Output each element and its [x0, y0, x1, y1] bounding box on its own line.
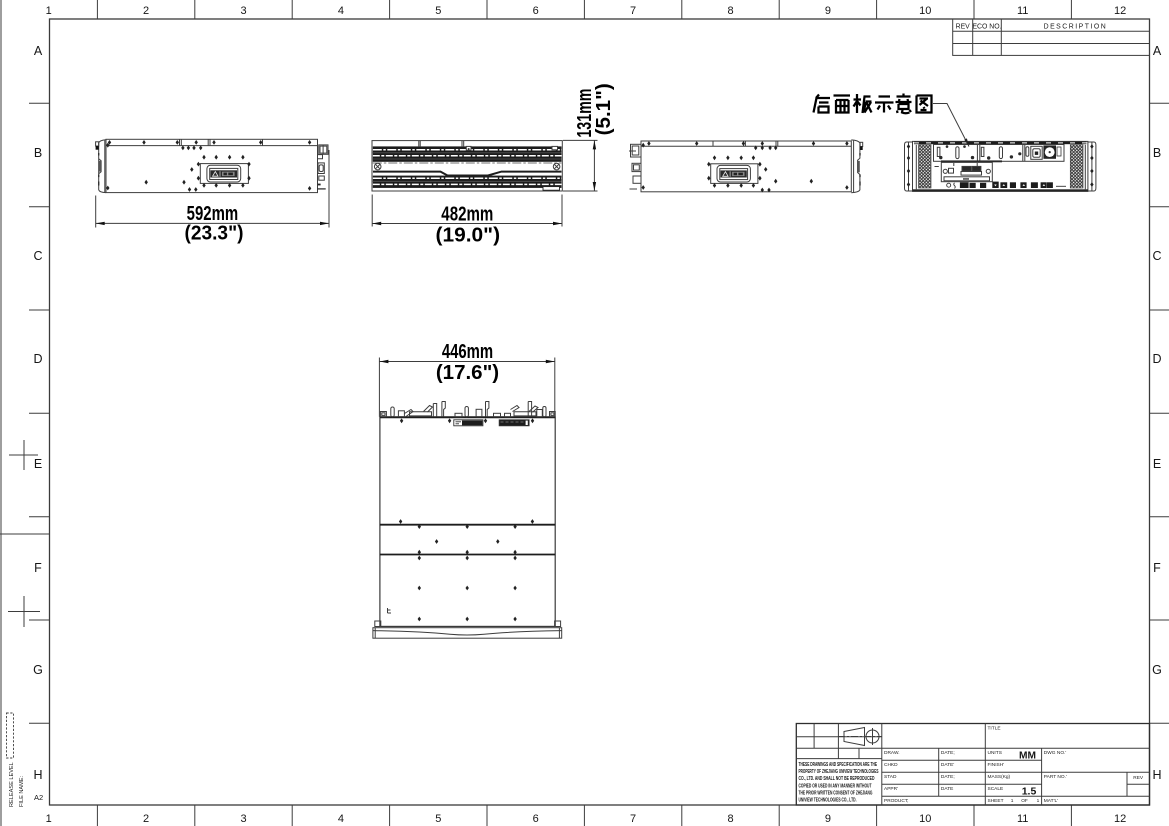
svg-text:CO., LTD. AND SHALL NOT BE REP: CO., LTD. AND SHALL NOT BE REPRODUCED: [799, 776, 875, 782]
svg-text:DWG NO.': DWG NO.': [1044, 750, 1067, 756]
svg-text:5: 5: [435, 5, 441, 17]
svg-text:446mm: 446mm: [442, 341, 493, 363]
svg-text:REV: REV: [1133, 775, 1144, 781]
svg-text:10: 10: [919, 5, 931, 17]
svg-text:D: D: [33, 352, 42, 366]
svg-text:1: 1: [1011, 798, 1014, 804]
svg-text:1: 1: [46, 813, 52, 825]
svg-text:B: B: [1153, 146, 1161, 160]
svg-text:DATE: DATE: [941, 786, 953, 792]
svg-text:10: 10: [919, 813, 931, 825]
svg-text:MAT'L': MAT'L': [1044, 798, 1058, 804]
svg-text:11: 11: [1017, 813, 1028, 825]
svg-text:5: 5: [435, 813, 441, 825]
svg-text:2: 2: [143, 813, 149, 825]
svg-text:3: 3: [240, 813, 246, 825]
svg-text:DATE;: DATE;: [941, 750, 955, 756]
svg-text:(19.0"): (19.0"): [436, 224, 501, 246]
svg-text:C: C: [1152, 249, 1161, 263]
svg-text:D: D: [1152, 352, 1161, 366]
svg-text:F: F: [34, 561, 42, 575]
svg-text:4: 4: [338, 5, 344, 17]
svg-text:MM: MM: [1019, 750, 1036, 762]
svg-text:PRODUCT;: PRODUCT;: [884, 798, 909, 804]
svg-text:PART NO.': PART NO.': [1044, 774, 1067, 780]
svg-text:4: 4: [338, 813, 344, 825]
svg-text:MASS(Kg): MASS(Kg): [988, 774, 1011, 780]
svg-text:A2: A2: [34, 793, 43, 802]
svg-text:G: G: [1152, 663, 1162, 677]
svg-text:11: 11: [1017, 5, 1028, 17]
svg-text:7: 7: [630, 5, 636, 17]
svg-text:STAD: STAD: [884, 774, 897, 780]
svg-text:SCALE: SCALE: [988, 786, 1004, 792]
svg-text:THESE DRAWINGS AND SPECIFICATI: THESE DRAWINGS AND SPECIFICATION ARE THE: [799, 762, 878, 768]
svg-text:C: C: [33, 249, 42, 263]
svg-text:12: 12: [1114, 813, 1126, 825]
svg-text:12: 12: [1114, 5, 1126, 17]
svg-text:UNITS: UNITS: [988, 750, 1002, 756]
svg-text:UNIVIEW TECHNOLOGIES CO., LTD.: UNIVIEW TECHNOLOGIES CO., LTD.: [799, 798, 857, 804]
svg-text:8: 8: [727, 813, 733, 825]
svg-text:(23.3"): (23.3"): [185, 223, 244, 245]
svg-text:DESCRIPTION: DESCRIPTION: [1044, 23, 1108, 30]
svg-text:A: A: [34, 44, 43, 58]
svg-text:1: 1: [46, 5, 52, 17]
svg-text:1.5: 1.5: [1022, 786, 1037, 798]
svg-text:6: 6: [533, 813, 539, 825]
svg-text:A: A: [1153, 44, 1162, 58]
svg-text:FILE NAME:: FILE NAME:: [19, 775, 25, 807]
svg-text:RELEASE LEVEL: RELEASE LEVEL: [9, 762, 15, 807]
svg-text:482mm: 482mm: [441, 204, 493, 226]
svg-text:CHKD: CHKD: [884, 762, 898, 768]
svg-text:8: 8: [727, 5, 733, 17]
svg-text:REV: REV: [956, 23, 971, 30]
svg-text:OF: OF: [1021, 798, 1028, 804]
svg-text:FINISH': FINISH': [988, 762, 1005, 768]
svg-text:1: 1: [1037, 798, 1040, 804]
svg-text:3: 3: [240, 5, 246, 17]
svg-text:DRAW.: DRAW.: [884, 750, 900, 756]
svg-text:APPR': APPR': [884, 786, 898, 792]
svg-text:THE PRIOR WRITTEN CONSENT OF Z: THE PRIOR WRITTEN CONSENT OF ZHEJIANG: [799, 790, 873, 796]
svg-text:6: 6: [533, 5, 539, 17]
svg-text:E: E: [34, 457, 42, 471]
svg-text:G: G: [33, 663, 43, 677]
svg-text:H: H: [1152, 768, 1161, 782]
svg-text:9: 9: [825, 813, 831, 825]
svg-text:(5.1"): (5.1"): [593, 83, 615, 135]
svg-text:B: B: [34, 146, 42, 160]
svg-text:ECO NO.: ECO NO.: [972, 23, 1001, 30]
svg-text:9: 9: [825, 5, 831, 17]
svg-text:(17.6"): (17.6"): [436, 362, 499, 384]
svg-text:DATE': DATE': [941, 762, 954, 768]
svg-text:H: H: [33, 768, 42, 782]
svg-text:COPIED OR USED IN ANY MANNER W: COPIED OR USED IN ANY MANNER WITHOUT: [799, 783, 872, 789]
svg-text:SHEET: SHEET: [988, 798, 1004, 804]
svg-text:2: 2: [143, 5, 149, 17]
svg-text:7: 7: [630, 813, 636, 825]
svg-text:PROPERTY OF ZHEJIANG UNIVIEW T: PROPERTY OF ZHEJIANG UNIVIEW TECHNOLOGIE…: [799, 769, 879, 775]
svg-text:E: E: [1153, 457, 1161, 471]
svg-text:F: F: [1153, 561, 1161, 575]
svg-text:DATE;: DATE;: [941, 774, 955, 780]
svg-text:TITLE: TITLE: [988, 726, 1001, 732]
